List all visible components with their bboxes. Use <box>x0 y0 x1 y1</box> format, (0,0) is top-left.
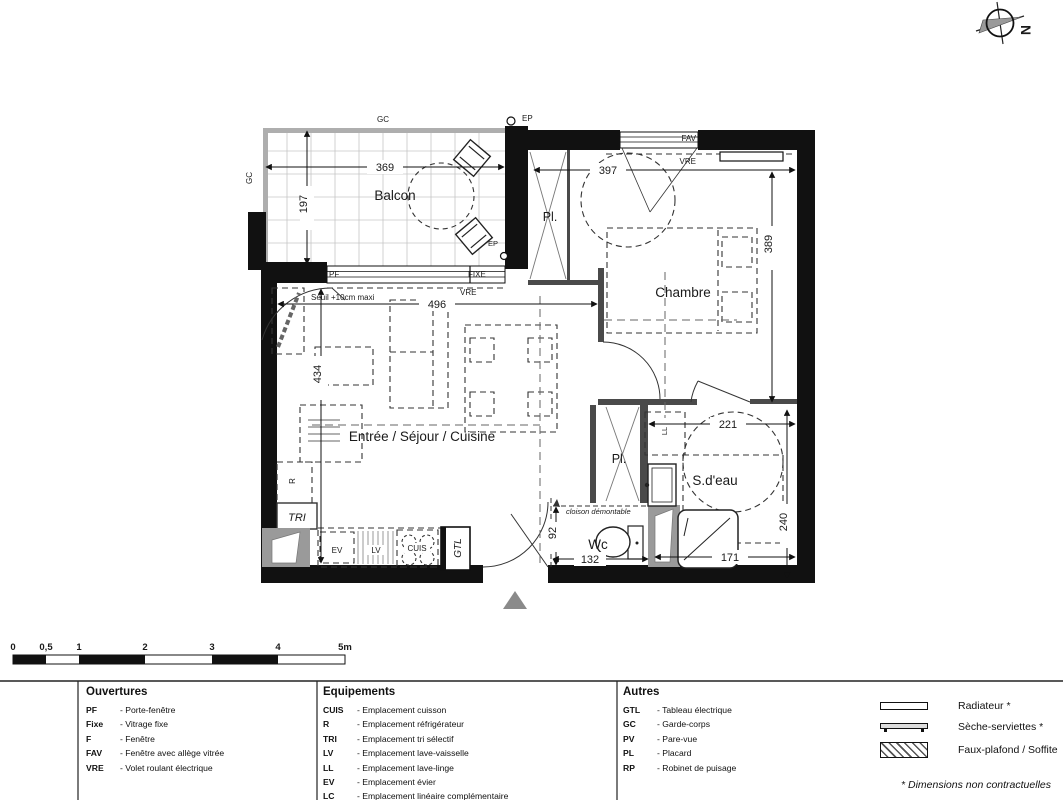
placard-label: Pl. <box>543 210 558 224</box>
radiator-symbol-icon <box>880 702 928 710</box>
balcony-chair <box>456 218 493 255</box>
svg-text:R: R <box>288 478 297 484</box>
legend-item: LV- Emplacement lave-vaisselle <box>323 746 508 760</box>
svg-text:Seuil +10cm maxi: Seuil +10cm maxi <box>311 293 375 302</box>
svg-text:3: 3 <box>209 642 214 653</box>
svg-text:92: 92 <box>547 527 559 539</box>
svg-text:VRE: VRE <box>460 288 476 297</box>
svg-text:EP: EP <box>522 114 533 123</box>
svg-text:cloison démontable: cloison démontable <box>566 507 631 516</box>
legend-symbols: Radiateur * Sèche-serviettes * Faux-plaf… <box>880 700 1058 767</box>
legend-item: VRE- Volet roulant électrique <box>86 761 224 775</box>
svg-text:5m: 5m <box>338 642 352 653</box>
footnote: * Dimensions non contractuelles <box>901 779 1051 791</box>
sdeau-label: S.d'eau <box>692 473 737 488</box>
compass-north-icon: N <box>976 2 1034 44</box>
legend-item: Fixe- Vitrage fixe <box>86 717 224 731</box>
legend-item: R- Emplacement réfrigérateur <box>323 717 508 731</box>
chair <box>470 338 494 362</box>
north-label: N <box>1018 25 1034 35</box>
pillow <box>722 292 752 322</box>
legend-item: FAV- Fenêtre avec allège vitrée <box>86 746 224 760</box>
balcony-chair <box>454 140 491 177</box>
cloison-arrow <box>553 499 560 507</box>
floor-plan-drawing: N <box>0 0 1063 800</box>
svg-text:CUIS: CUIS <box>407 544 426 553</box>
svg-text:FIXE: FIXE <box>468 270 486 279</box>
legend-equipements: Equipements CUIS- Emplacement cuisson R-… <box>323 686 508 800</box>
legend-item: F- Fenêtre <box>86 732 224 746</box>
chambre-label: Chambre <box>655 285 711 300</box>
sejour-label: Entrée / Séjour / Cuisine <box>349 429 495 444</box>
bed <box>607 228 757 333</box>
legend-item: CUIS- Emplacement cuisson <box>323 703 508 717</box>
placard-label: Pl. <box>612 452 627 466</box>
svg-text:TRI: TRI <box>288 512 306 524</box>
scale-ticks: 0 0,5 1 2 3 4 5m <box>10 642 352 653</box>
svg-text:PF: PF <box>329 270 339 279</box>
svg-text:434: 434 <box>312 365 324 383</box>
legend-item: GTL- Tableau électrique <box>623 703 736 717</box>
svg-text:GC: GC <box>245 172 254 184</box>
svg-text:1: 1 <box>76 642 82 653</box>
legend-item: TRI- Emplacement tri sélectif <box>323 732 508 746</box>
svg-text:GTL: GTL <box>453 538 464 557</box>
legend-item: LL- Emplacement lave-linge <box>323 761 508 775</box>
chair <box>470 392 494 416</box>
legend-autres: Autres GTL- Tableau électrique GC- Garde… <box>623 686 736 775</box>
svg-text:221: 221 <box>719 419 737 431</box>
legend-item: PL- Placard <box>623 746 736 760</box>
chambre-door-swing <box>603 342 660 399</box>
svg-text:132: 132 <box>581 554 599 566</box>
hatch-symbol-icon <box>880 742 928 758</box>
sofa <box>390 300 448 408</box>
svg-text:0: 0 <box>10 642 15 653</box>
svg-text:2: 2 <box>142 642 147 653</box>
svg-text:EV: EV <box>332 546 343 555</box>
svg-text:240: 240 <box>778 513 790 531</box>
svg-text:0,5: 0,5 <box>39 642 53 653</box>
svg-text:197: 197 <box>298 195 310 213</box>
closet-cross-lines <box>530 152 639 501</box>
svg-text:389: 389 <box>763 235 775 253</box>
svg-text:LL: LL <box>660 427 669 435</box>
radiator-chambre <box>720 152 783 161</box>
floor-plan-page: N <box>0 0 1063 800</box>
svg-text:GC: GC <box>377 115 389 124</box>
legend-symbol-seche-serviettes: Sèche-serviettes * <box>880 721 1058 733</box>
ep-point <box>501 253 508 260</box>
legend-ouvertures: Ouvertures PF- Porte-fenêtre Fixe- Vitra… <box>86 686 224 775</box>
radiator-sejour <box>278 293 299 347</box>
legend-symbol-radiateur: Radiateur * <box>880 700 1058 712</box>
wc-label: Wc <box>588 537 608 552</box>
svg-text:FAV: FAV <box>681 134 696 143</box>
svg-text:4: 4 <box>275 642 281 653</box>
legend-item: PF- Porte-fenêtre <box>86 703 224 717</box>
svg-text:LV: LV <box>371 546 381 555</box>
svg-text:397: 397 <box>599 165 617 177</box>
interior-walls <box>528 150 797 503</box>
note-labels: Seuil +10cm maxi cloison démontable <box>311 293 631 516</box>
legend-title: Ouvertures <box>86 686 224 698</box>
svg-text:171: 171 <box>721 552 739 564</box>
scale-bar: 0 0,5 1 2 3 4 5m <box>10 642 352 664</box>
pillow <box>722 237 752 267</box>
legend-item: LC- Emplacement linéaire complémentaire <box>323 789 508 800</box>
legend-item: RP- Robinet de puisage <box>623 761 736 775</box>
svg-text:VRE: VRE <box>680 157 696 166</box>
entry-door-swing <box>483 502 548 567</box>
legend-title: Equipements <box>323 686 508 698</box>
legend-item: PV- Pare-vue <box>623 732 736 746</box>
legend-item: EV- Emplacement évier <box>323 775 508 789</box>
svg-text:EP: EP <box>488 239 498 248</box>
legend-symbol-faux-plafond: Faux-plafond / Soffite <box>880 742 1058 758</box>
ep-point <box>507 117 515 125</box>
towel-dryer-symbol-icon <box>880 723 928 729</box>
balcon-label: Balcon <box>374 188 415 203</box>
svg-text:369: 369 <box>376 162 394 174</box>
legend-title: Autres <box>623 686 736 698</box>
tv-unit-shelves <box>308 420 340 441</box>
entrance-marker <box>503 591 527 609</box>
sdeau-door-leaf <box>698 381 750 402</box>
legend-item: GC- Garde-corps <box>623 717 736 731</box>
balcony-table <box>408 163 474 229</box>
guardrail-top <box>263 128 505 133</box>
svg-text:496: 496 <box>428 299 446 311</box>
